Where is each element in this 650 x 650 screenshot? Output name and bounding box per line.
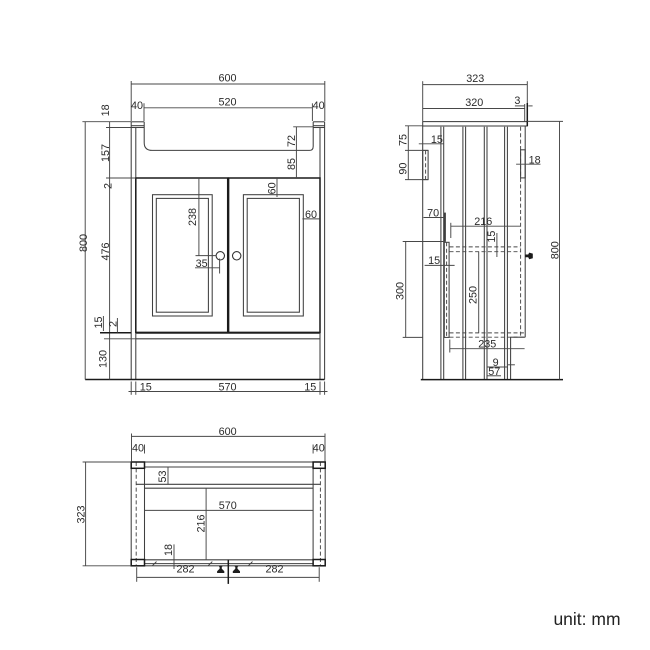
svg-text:600: 600	[218, 72, 236, 84]
svg-text:2: 2	[102, 183, 114, 189]
svg-text:238: 238	[187, 208, 199, 226]
svg-text:75: 75	[398, 134, 410, 146]
svg-text:570: 570	[218, 381, 236, 393]
svg-text:15: 15	[431, 134, 443, 146]
svg-text:216: 216	[474, 216, 492, 228]
svg-text:40: 40	[313, 443, 325, 455]
svg-text:unit: mm: unit: mm	[553, 609, 620, 629]
svg-text:70: 70	[427, 207, 439, 219]
svg-text:300: 300	[395, 282, 407, 300]
svg-text:53: 53	[157, 470, 169, 482]
svg-text:800: 800	[78, 234, 90, 252]
svg-text:18: 18	[100, 104, 112, 116]
svg-text:570: 570	[219, 500, 237, 512]
svg-text:18: 18	[529, 154, 541, 166]
svg-text:800: 800	[549, 241, 561, 259]
svg-text:60: 60	[305, 209, 317, 221]
svg-text:15: 15	[140, 381, 152, 393]
svg-text:3: 3	[514, 95, 520, 107]
svg-text:282: 282	[176, 564, 194, 576]
svg-text:320: 320	[465, 97, 483, 109]
svg-text:15: 15	[428, 255, 440, 267]
svg-text:40: 40	[132, 443, 144, 455]
svg-text:60: 60	[266, 182, 278, 194]
svg-text:476: 476	[100, 242, 112, 260]
svg-text:323: 323	[466, 73, 484, 85]
svg-text:282: 282	[265, 564, 283, 576]
svg-text:40: 40	[131, 100, 143, 112]
svg-text:600: 600	[219, 426, 237, 438]
svg-text:15: 15	[304, 381, 316, 393]
svg-text:35: 35	[196, 258, 208, 270]
svg-text:90: 90	[398, 163, 410, 175]
svg-text:72: 72	[286, 135, 298, 147]
svg-text:250: 250	[468, 286, 480, 304]
svg-text:520: 520	[218, 97, 236, 109]
svg-text:18: 18	[163, 544, 175, 556]
svg-text:323: 323	[75, 505, 87, 523]
svg-text:157: 157	[100, 144, 112, 162]
svg-text:130: 130	[98, 350, 110, 368]
svg-text:216: 216	[195, 514, 207, 532]
svg-text:85: 85	[286, 158, 298, 170]
svg-text:57: 57	[488, 366, 500, 378]
svg-text:15: 15	[486, 231, 498, 243]
svg-text:235: 235	[478, 338, 496, 350]
svg-text:40: 40	[313, 100, 325, 112]
